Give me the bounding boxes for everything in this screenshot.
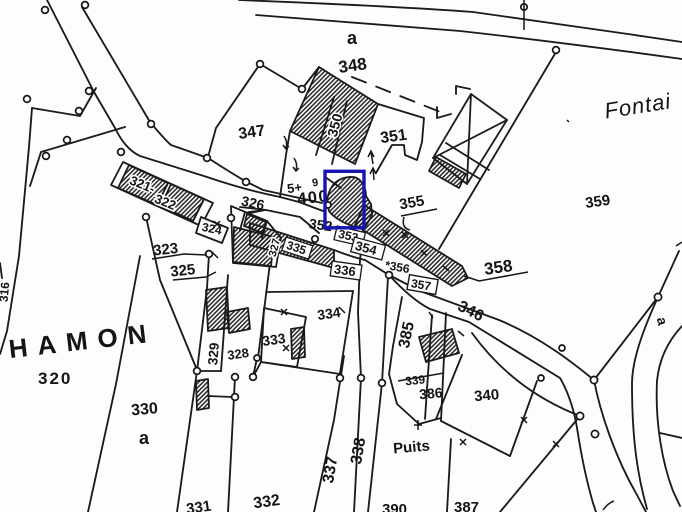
svg-text:316: 316 <box>0 281 12 302</box>
svg-text:385: 385 <box>396 320 418 350</box>
svg-text:a: a <box>347 28 358 48</box>
svg-text:332: 332 <box>252 492 281 512</box>
svg-text:355: 355 <box>398 192 426 213</box>
svg-text:331: 331 <box>185 498 212 512</box>
svg-text:328: 328 <box>226 345 250 363</box>
svg-text:351: 351 <box>379 127 408 148</box>
svg-text:386: 386 <box>418 384 443 402</box>
svg-text:334: 334 <box>316 304 342 323</box>
svg-text:329: 329 <box>205 342 222 366</box>
svg-text:Puits: Puits <box>392 437 430 457</box>
svg-text:336: 336 <box>333 261 357 279</box>
svg-text:a: a <box>139 428 150 448</box>
svg-text:390: 390 <box>382 501 407 512</box>
svg-text:348: 348 <box>337 54 368 77</box>
svg-text:340: 340 <box>473 386 499 405</box>
svg-text:338: 338 <box>348 436 369 465</box>
svg-text:HAMON: HAMON <box>7 317 158 364</box>
svg-text:320: 320 <box>38 369 72 388</box>
svg-text:387: 387 <box>454 499 479 512</box>
svg-text:337: 337 <box>320 455 341 484</box>
svg-text:326: 326 <box>240 192 266 213</box>
svg-text:Fontai: Fontai <box>603 88 673 123</box>
svg-text:346: 346 <box>455 298 487 325</box>
svg-text:347: 347 <box>237 122 266 143</box>
svg-text:333: 333 <box>261 330 287 349</box>
svg-text:352: 352 <box>308 215 334 234</box>
svg-text:330: 330 <box>131 400 159 419</box>
svg-text:a: a <box>654 315 672 327</box>
svg-text:359: 359 <box>584 192 611 212</box>
